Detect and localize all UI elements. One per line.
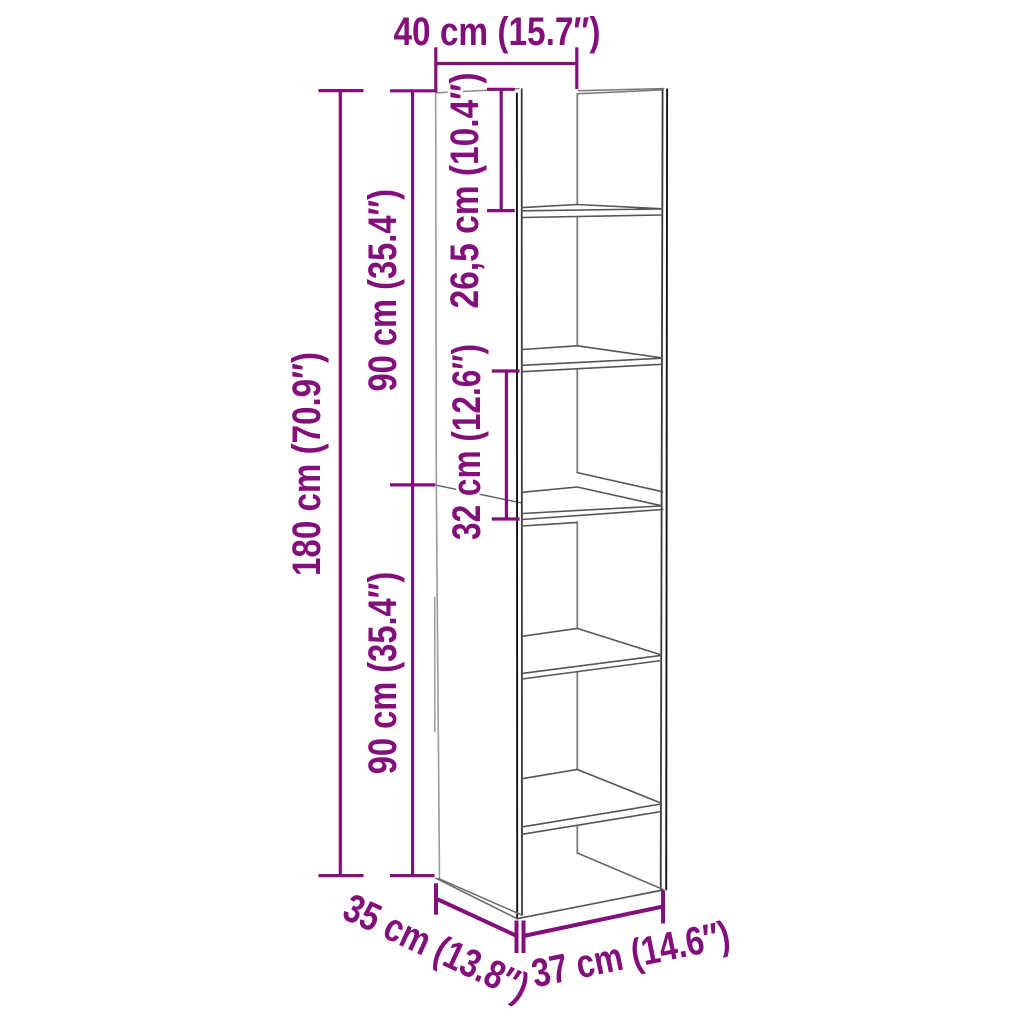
svg-text:90 cm (35.4″): 90 cm (35.4″)	[361, 189, 405, 392]
svg-text:90 cm (35.4″): 90 cm (35.4″)	[361, 572, 405, 775]
svg-text:32 cm (12.6″): 32 cm (12.6″)	[445, 344, 489, 540]
svg-text:40 cm (15.7″): 40 cm (15.7″)	[394, 10, 601, 54]
svg-text:26,5 cm (10.4″): 26,5 cm (10.4″)	[443, 73, 487, 309]
svg-text:180 cm (70.9″): 180 cm (70.9″)	[285, 352, 329, 576]
